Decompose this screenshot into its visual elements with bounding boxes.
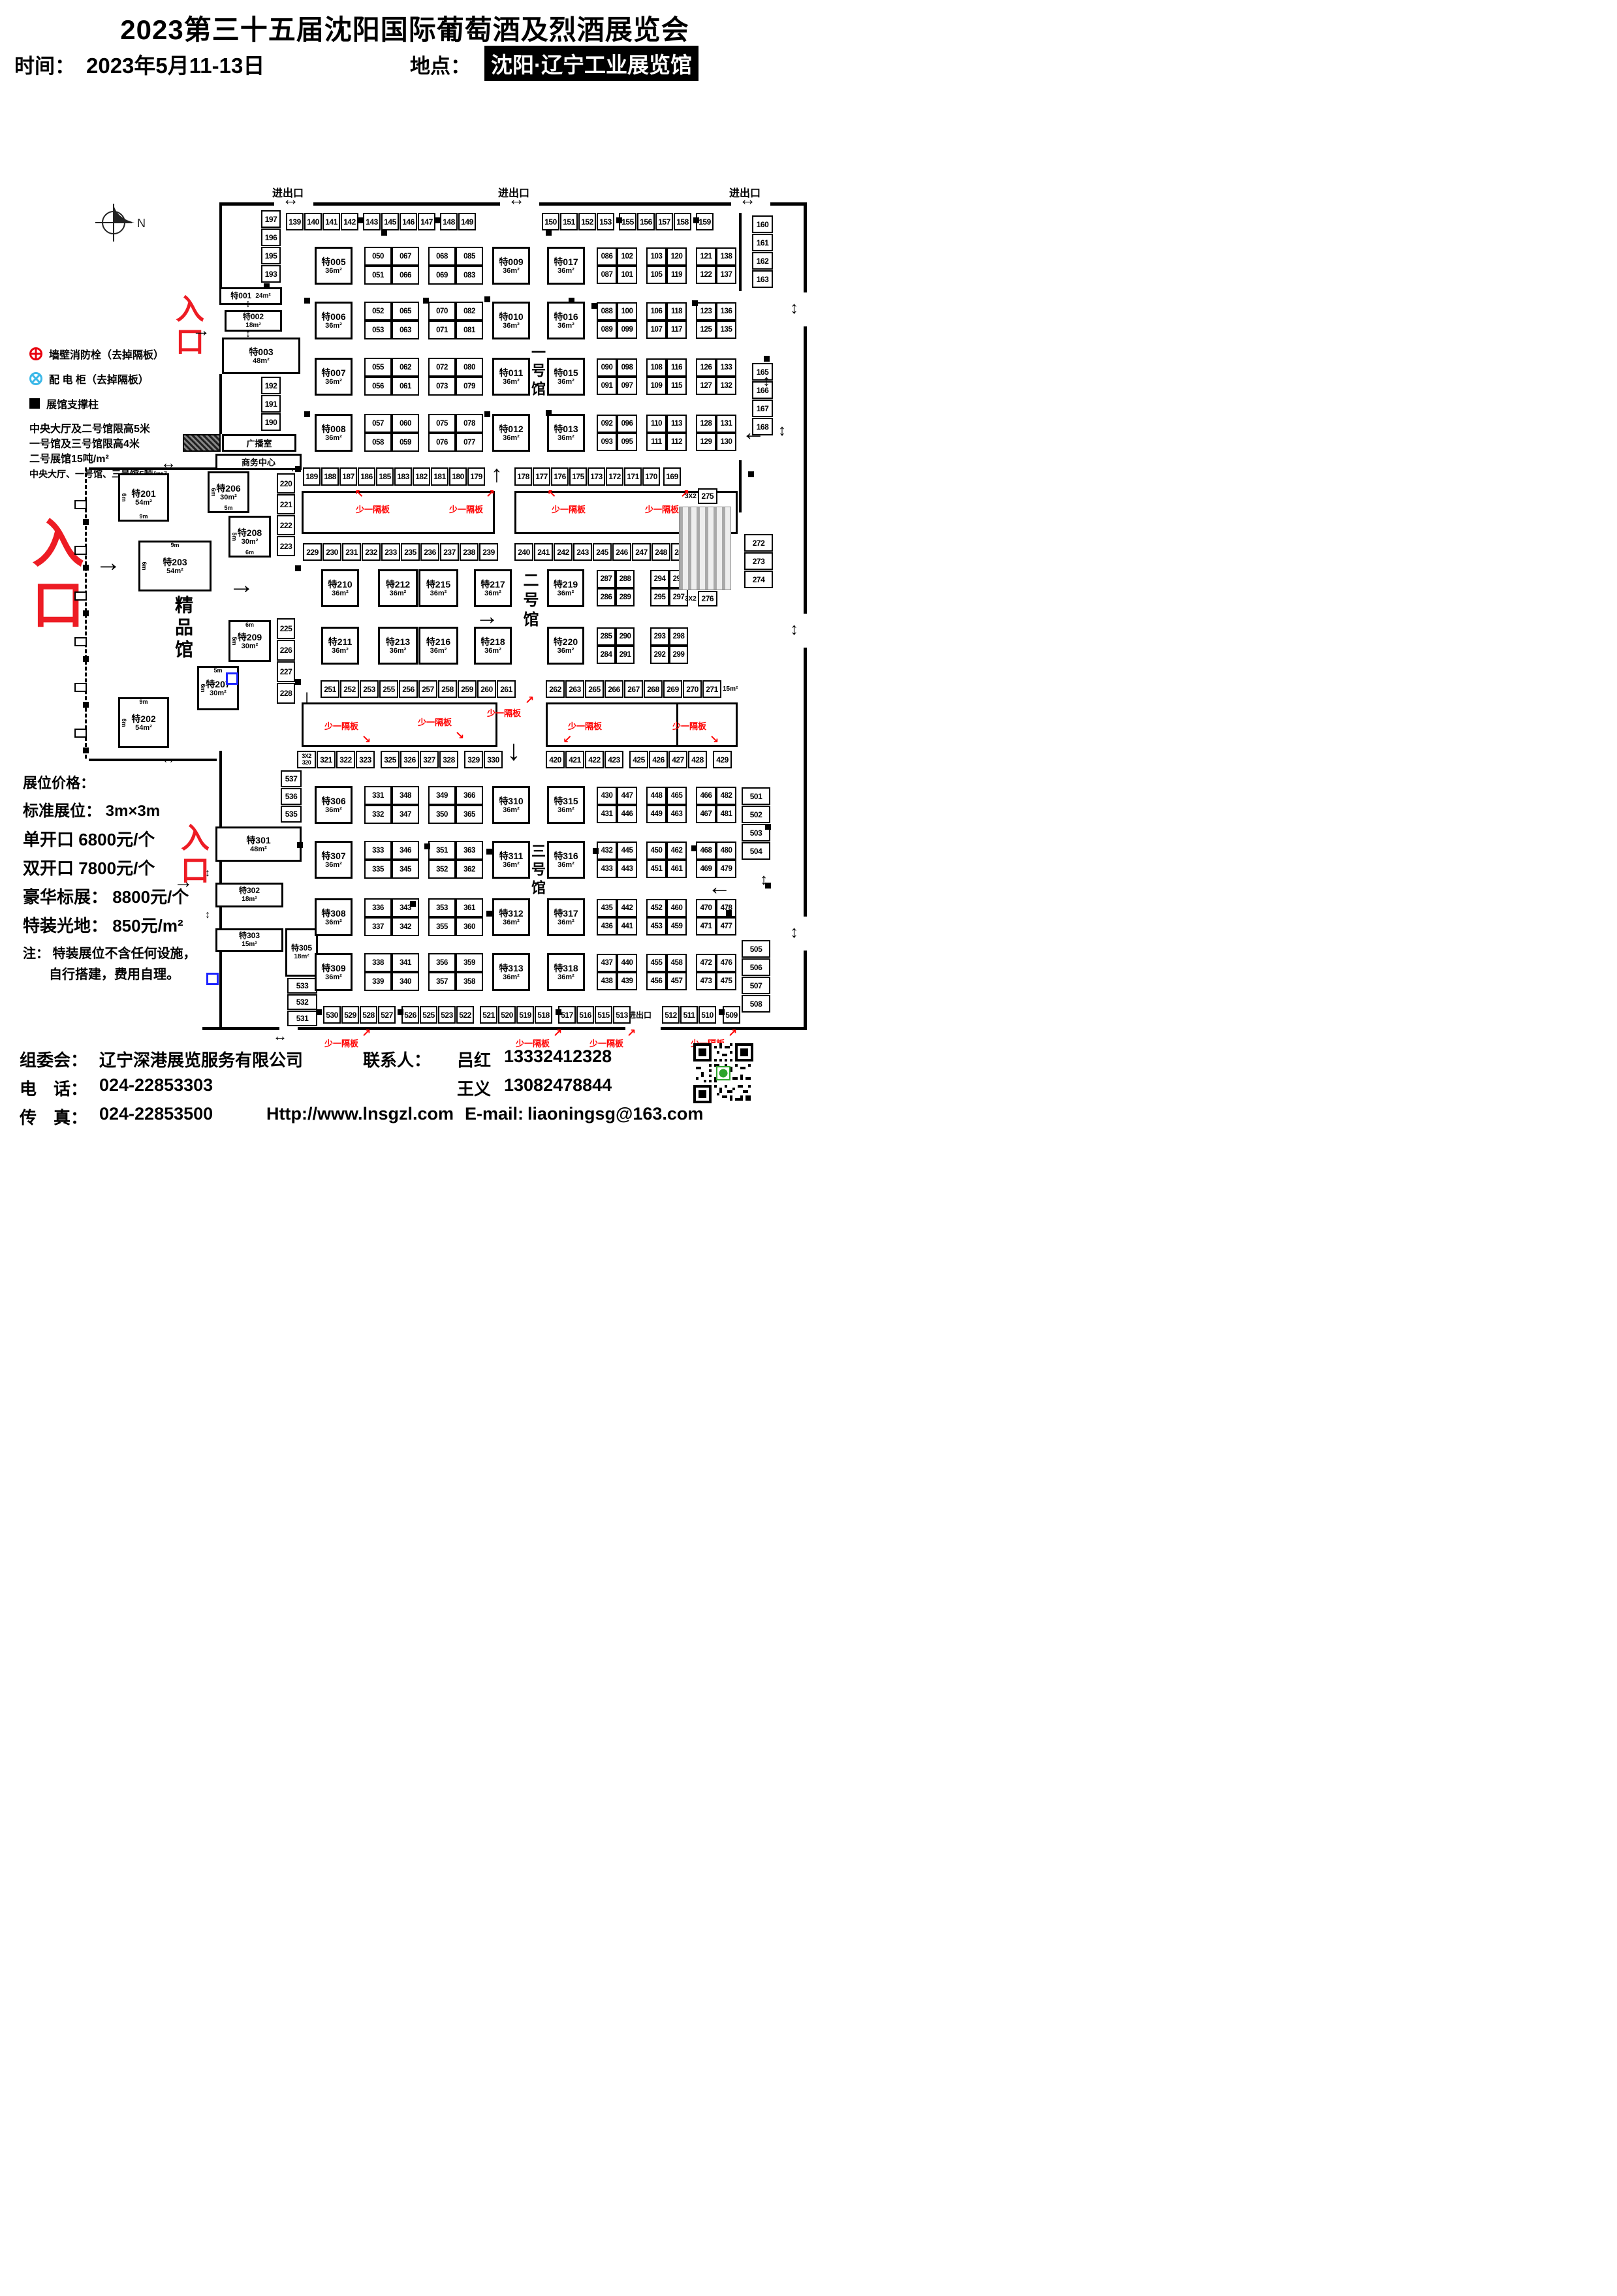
booth-cell[interactable]: 472 xyxy=(696,954,716,972)
booth-cell[interactable]: 130 xyxy=(716,433,736,451)
booth-cell[interactable]: 512 xyxy=(662,1006,680,1024)
booth-cell[interactable]: 083 xyxy=(456,266,483,285)
booth-cell[interactable]: 112 xyxy=(667,433,687,451)
booth-cell[interactable]: 192 xyxy=(261,377,281,394)
booth-cell[interactable]: 299 xyxy=(669,646,688,664)
booth-cell[interactable]: 095 xyxy=(617,433,637,451)
booth-cell[interactable]: 127 xyxy=(696,377,716,395)
booth-cell[interactable]: 121 xyxy=(696,247,716,266)
booth-cell[interactable]: 107 xyxy=(646,321,667,339)
booth-cell[interactable]: 458 xyxy=(667,954,687,972)
booth-cell[interactable]: 506 xyxy=(742,958,770,976)
booth-cell[interactable]: 537 xyxy=(281,770,302,787)
booth-t008[interactable]: 特00836m² xyxy=(315,414,353,452)
booth-t317[interactable]: 特31736m² xyxy=(547,898,585,936)
booth-cell[interactable]: 135 xyxy=(716,321,736,339)
booth-cell[interactable]: 475 xyxy=(716,972,736,990)
booth-cell[interactable]: 251 xyxy=(321,680,339,698)
booth-cell[interactable]: 191 xyxy=(261,395,281,413)
booth-cell[interactable]: 188 xyxy=(321,467,339,486)
booth-t303[interactable]: 特30315m² xyxy=(215,928,283,952)
booth-cell[interactable]: 067 xyxy=(392,247,419,266)
booth-cell[interactable]: 081 xyxy=(456,321,483,339)
booth-cell[interactable]: 522 xyxy=(456,1006,474,1024)
booth-cell[interactable]: 258 xyxy=(438,680,457,698)
booth-cell[interactable]: 441 xyxy=(617,917,637,936)
booth-cell[interactable]: 450 xyxy=(646,841,667,860)
booth-cell[interactable]: 289 xyxy=(616,588,635,606)
booth-t219[interactable]: 特21936m² xyxy=(547,569,584,607)
booth-cell[interactable]: 113 xyxy=(667,415,687,433)
booth-cell[interactable]: 053 xyxy=(364,321,392,339)
booth-cell[interactable]: 243 xyxy=(573,543,592,561)
booth-t301[interactable]: 特30148m² xyxy=(215,826,302,862)
booth-cell[interactable]: 131 xyxy=(716,415,736,433)
booth-cell[interactable]: 291 xyxy=(616,646,635,664)
booth-cell[interactable]: 128 xyxy=(696,415,716,433)
booth-cell[interactable]: 101 xyxy=(617,266,637,284)
booth-cell[interactable]: 359 xyxy=(456,953,483,972)
booth-cell[interactable]: 262 xyxy=(546,680,565,698)
booth-t017[interactable]: 特01736m² xyxy=(547,247,585,285)
booth-cell[interactable]: 326 xyxy=(400,751,419,768)
booth-cell[interactable]: 468 xyxy=(696,841,716,860)
booth-cell[interactable]: 448 xyxy=(646,787,667,805)
booth-cell[interactable]: 051 xyxy=(364,266,392,285)
booth-cell[interactable]: 361 xyxy=(456,898,483,917)
booth-cell[interactable]: 271 xyxy=(702,680,721,698)
booth-cell[interactable]: 348 xyxy=(392,786,419,805)
booth-cell[interactable]: 233 xyxy=(381,543,400,561)
booth-cell[interactable]: 111 xyxy=(646,433,667,451)
booth-t318[interactable]: 特31836m² xyxy=(547,953,585,991)
booth-cell[interactable]: 263 xyxy=(565,680,584,698)
booth-cell[interactable]: 350 xyxy=(428,805,456,824)
booth-cell[interactable]: 533 xyxy=(287,978,317,994)
booth-cell[interactable]: 181 xyxy=(431,467,448,486)
booth-cell[interactable]: 059 xyxy=(392,433,419,452)
booth-cell[interactable]: 260 xyxy=(477,680,496,698)
booth-cell[interactable]: 099 xyxy=(617,321,637,339)
booth-t311[interactable]: 特31136m² xyxy=(492,841,530,879)
booth-t308[interactable]: 特30836m² xyxy=(315,898,353,936)
booth-cell[interactable]: 481 xyxy=(716,805,736,823)
booth-cell[interactable]: 270 xyxy=(683,680,702,698)
booth-cell[interactable]: 505 xyxy=(742,940,770,958)
booth-cell[interactable]: 428 xyxy=(688,751,707,768)
booth-cell[interactable]: 187 xyxy=(339,467,357,486)
booth-cell[interactable]: 516 xyxy=(576,1006,594,1024)
booth-cell[interactable]: 171 xyxy=(624,467,642,486)
booth-t213[interactable]: 特21336m² xyxy=(378,627,418,665)
booth-cell[interactable]: 248 xyxy=(652,543,670,561)
booth-cell[interactable]: 118 xyxy=(667,302,687,321)
booth-t012[interactable]: 特01236m² xyxy=(492,414,530,452)
booth-cell[interactable]: 242 xyxy=(554,543,573,561)
booth-t309[interactable]: 特30936m² xyxy=(315,953,353,991)
booth-cell[interactable]: 176 xyxy=(551,467,569,486)
booth-cell[interactable]: 298 xyxy=(669,627,688,646)
booth-cell[interactable]: 110 xyxy=(646,415,667,433)
booth-cell[interactable]: 471 xyxy=(696,917,716,936)
booth-cell[interactable]: 470 xyxy=(696,899,716,917)
booth-cell[interactable]: 521 xyxy=(480,1006,497,1024)
booth-cell[interactable]: 451 xyxy=(646,860,667,878)
booth-t201[interactable]: 特20154m² 6m9m xyxy=(118,473,169,522)
booth-cell[interactable]: 182 xyxy=(413,467,430,486)
booth-cell[interactable]: 266 xyxy=(604,680,623,698)
booth-cell[interactable]: 504 xyxy=(742,842,770,860)
booth-cell[interactable]: 072 xyxy=(428,358,456,377)
booth-cell[interactable]: 290 xyxy=(616,627,635,646)
booth-cell[interactable]: 341 xyxy=(392,953,419,972)
booth-cell[interactable]: 145 xyxy=(381,213,399,230)
booth-cell[interactable]: 351 xyxy=(428,841,456,860)
booth-cell[interactable]: 285 xyxy=(597,627,616,646)
booth-cell[interactable]: 457 xyxy=(667,972,687,990)
booth-cell[interactable]: 227 xyxy=(277,661,295,682)
booth-cell[interactable]: 420 xyxy=(546,751,565,768)
booth-cell[interactable]: 140 xyxy=(304,213,322,230)
booth-cell[interactable]: 106 xyxy=(646,302,667,321)
booth-cell[interactable]: 456 xyxy=(646,972,667,990)
booth-cell[interactable]: 150 xyxy=(542,213,559,230)
booth-cell[interactable]: 294 xyxy=(650,570,669,588)
booth-cell[interactable]: 325 xyxy=(381,751,400,768)
booth-cell[interactable]: 528 xyxy=(360,1006,377,1024)
booth-cell[interactable]: 185 xyxy=(376,467,394,486)
booth-cell[interactable]: 463 xyxy=(667,805,687,823)
booth-cell[interactable]: 098 xyxy=(617,358,637,377)
booth-t211[interactable]: 特21136m² xyxy=(321,627,359,665)
booth-cell[interactable]: 477 xyxy=(716,917,736,936)
booth-t305[interactable]: 特30518m² xyxy=(285,928,318,977)
booth-cell[interactable]: 421 xyxy=(565,751,584,768)
booth-cell[interactable]: 442 xyxy=(617,899,637,917)
booth-cell[interactable]: 226 xyxy=(277,640,295,661)
booth-t003[interactable]: 特00348m² xyxy=(222,338,300,374)
booth-cell[interactable]: 352 xyxy=(428,860,456,879)
booth-cell[interactable]: 333 xyxy=(364,841,392,860)
booth-cell[interactable]: 096 xyxy=(617,415,637,433)
booth-cell[interactable]: 197 xyxy=(261,210,281,228)
booth-cell[interactable]: 065 xyxy=(392,302,419,321)
booth-cell[interactable]: 535 xyxy=(281,806,302,823)
booth-cell[interactable]: 175 xyxy=(569,467,587,486)
booth-cell[interactable]: 460 xyxy=(667,899,687,917)
booth-cell[interactable]: 220 xyxy=(277,473,295,494)
booth-cell[interactable]: 089 xyxy=(597,321,617,339)
booth-t217[interactable]: 特21736m² xyxy=(474,569,512,607)
booth-cell[interactable]: 056 xyxy=(364,377,392,396)
booth-cell[interactable]: 286 xyxy=(597,588,616,606)
booth-cell[interactable]: 139 xyxy=(286,213,304,230)
booth-cell[interactable]: 438 xyxy=(597,972,617,990)
booth-cell[interactable]: 052 xyxy=(364,302,392,321)
booth-cell[interactable]: 342 xyxy=(392,917,419,936)
booth-cell[interactable]: 256 xyxy=(399,680,418,698)
booth-cell[interactable]: 100 xyxy=(617,302,637,321)
booth-cell[interactable]: 255 xyxy=(379,680,398,698)
booth-cell[interactable]: 075 xyxy=(428,414,456,433)
booth-cell[interactable]: 167 xyxy=(752,400,773,417)
booth-cell[interactable]: 069 xyxy=(428,266,456,285)
booth-cell[interactable]: 132 xyxy=(716,377,736,395)
booth-cell[interactable]: 295 xyxy=(650,588,669,606)
booth-cell[interactable]: 502 xyxy=(742,806,770,823)
booth-cell[interactable]: 103 xyxy=(646,247,667,266)
booth-cell[interactable]: 459 xyxy=(667,917,687,936)
booth-cell[interactable]: 120 xyxy=(667,247,687,266)
booth-cell[interactable]: 365 xyxy=(456,805,483,824)
booth-cell[interactable]: 284 xyxy=(597,646,616,664)
booth-cell[interactable]: 519 xyxy=(516,1006,534,1024)
booth-cell[interactable]: 058 xyxy=(364,433,392,452)
booth-cell[interactable]: 125 xyxy=(696,321,716,339)
booth-cell[interactable]: 189 xyxy=(303,467,321,486)
booth-cell[interactable]: 446 xyxy=(617,805,637,823)
booth-cell[interactable]: 453 xyxy=(646,917,667,936)
booth-cell[interactable]: 117 xyxy=(667,321,687,339)
booth-cell[interactable]: 455 xyxy=(646,954,667,972)
booth-cell[interactable]: 116 xyxy=(667,358,687,377)
booth-cell[interactable]: 466 xyxy=(696,787,716,805)
booth-cell[interactable]: 062 xyxy=(392,358,419,377)
booth-cell[interactable]: 161 xyxy=(752,234,773,251)
booth-cell[interactable]: 137 xyxy=(716,266,736,284)
booth-cell[interactable]: 429 xyxy=(713,751,732,768)
booth-cell[interactable]: 509 xyxy=(723,1006,740,1024)
booth-cell[interactable]: 180 xyxy=(449,467,467,486)
booth-cell[interactable]: 435 xyxy=(597,899,617,917)
booth-cell[interactable]: 259 xyxy=(458,680,477,698)
booth-cell[interactable]: 362 xyxy=(456,860,483,879)
booth-cell[interactable]: 338 xyxy=(364,953,392,972)
booth-cell[interactable]: 513 xyxy=(613,1006,631,1024)
booth-t016[interactable]: 特01636m² xyxy=(547,302,585,339)
booth-t310[interactable]: 特31036m² xyxy=(492,786,530,824)
booth-cell[interactable]: 467 xyxy=(696,805,716,823)
booth-cell[interactable]: 158 xyxy=(674,213,691,230)
booth-cell[interactable]: 473 xyxy=(696,972,716,990)
booth-cell[interactable]: 123 xyxy=(696,302,716,321)
booth-cell[interactable]: 292 xyxy=(650,646,669,664)
booth-cell[interactable]: 436 xyxy=(597,917,617,936)
booth-t315[interactable]: 特31536m² xyxy=(547,786,585,824)
booth-cell[interactable]: 253 xyxy=(360,680,379,698)
booth-cell[interactable]: 160 xyxy=(752,215,773,233)
booth-cell[interactable]: 070 xyxy=(428,302,456,321)
booth-cell[interactable]: 332 xyxy=(364,805,392,824)
booth-cell[interactable]: 162 xyxy=(752,252,773,270)
booth-cell[interactable]: 102 xyxy=(617,247,637,266)
booth-cell[interactable]: 269 xyxy=(663,680,682,698)
booth-cell[interactable]: 462 xyxy=(667,841,687,860)
booth-cell[interactable]: 080 xyxy=(456,358,483,377)
booth-cell[interactable]: 105 xyxy=(646,266,667,284)
booth-cell[interactable]: 426 xyxy=(649,751,668,768)
booth-cell[interactable]: 133 xyxy=(716,358,736,377)
booth-cell[interactable]: 141 xyxy=(322,213,340,230)
booth-t312[interactable]: 特31236m² xyxy=(492,898,530,936)
booth-cell[interactable]: 082 xyxy=(456,302,483,321)
booth-cell[interactable]: 336 xyxy=(364,898,392,917)
booth-cell[interactable]: 173 xyxy=(588,467,605,486)
booth-cell[interactable]: 323 xyxy=(356,751,375,768)
booth-cell[interactable]: 068 xyxy=(428,247,456,266)
booth-cell[interactable]: 163 xyxy=(752,270,773,288)
booth-cell[interactable]: 423 xyxy=(604,751,623,768)
booth-t313[interactable]: 特31336m² xyxy=(492,953,530,991)
booth-t216[interactable]: 特21636m² xyxy=(418,627,458,665)
booth-cell[interactable]: 437 xyxy=(597,954,617,972)
booth-cell[interactable]: 236 xyxy=(420,543,439,561)
booth-cell[interactable]: 353 xyxy=(428,898,456,917)
booth-cell[interactable]: 425 xyxy=(629,751,648,768)
booth-cell[interactable]: 327 xyxy=(420,751,439,768)
booth-cell[interactable]: 183 xyxy=(394,467,412,486)
booth-cell[interactable]: 508 xyxy=(742,995,770,1013)
booth-cell[interactable]: 186 xyxy=(358,467,375,486)
booth-t208[interactable]: 特20830m² 5m6m xyxy=(228,516,271,558)
booth-t206[interactable]: 特20630m² 6m5m xyxy=(208,471,249,513)
booth-cell[interactable]: 445 xyxy=(617,841,637,860)
booth-cell[interactable]: 340 xyxy=(392,972,419,991)
booth-cell[interactable]: 076 xyxy=(428,433,456,452)
booth-cell[interactable]: 193 xyxy=(261,265,281,283)
booth-cell[interactable]: 501 xyxy=(742,787,770,805)
booth-cell[interactable]: 151 xyxy=(560,213,578,230)
booth-cell[interactable]: 328 xyxy=(439,751,458,768)
booth-cell[interactable]: 482 xyxy=(716,787,736,805)
booth-cell[interactable]: 427 xyxy=(668,751,687,768)
booth-cell[interactable]: 532 xyxy=(287,994,317,1010)
booth-cell[interactable]: 092 xyxy=(597,415,617,433)
booth-cell[interactable]: 339 xyxy=(364,972,392,991)
booth-cell[interactable]: 345 xyxy=(392,860,419,879)
booth-cell[interactable]: 078 xyxy=(456,414,483,433)
booth-cell[interactable]: 321 xyxy=(317,751,336,768)
booth-t010[interactable]: 特01036m² xyxy=(492,302,530,339)
booth-t215[interactable]: 特21536m² xyxy=(418,569,458,607)
booth-cell[interactable]: 366 xyxy=(456,786,483,805)
booth-cell[interactable]: 525 xyxy=(420,1006,437,1024)
booth-cell[interactable]: 143 xyxy=(363,213,381,230)
booth-cell[interactable]: 261 xyxy=(497,680,516,698)
booth-cell[interactable]: 529 xyxy=(341,1006,359,1024)
booth-cell[interactable]: 329 xyxy=(464,751,483,768)
booth-t203[interactable]: 特20354m² 9m6m xyxy=(138,541,212,591)
booth-cell[interactable]: 071 xyxy=(428,321,456,339)
booth-cell[interactable]: 061 xyxy=(392,377,419,396)
booth-cell[interactable]: 276 xyxy=(698,591,717,606)
booth-cell[interactable]: 531 xyxy=(287,1011,317,1026)
booth-cell[interactable]: 091 xyxy=(597,377,617,395)
booth-cell[interactable]: 153 xyxy=(597,213,614,230)
booth-cell[interactable]: 515 xyxy=(595,1006,612,1024)
booth-cell[interactable]: 057 xyxy=(364,414,392,433)
booth-cell[interactable]: 240 xyxy=(514,543,533,561)
booth-cell[interactable]: 356 xyxy=(428,953,456,972)
booth-t015[interactable]: 特01536m² xyxy=(547,358,585,396)
booth-cell[interactable]: 073 xyxy=(428,377,456,396)
booth-cell[interactable]: 245 xyxy=(593,543,612,561)
booth-cell[interactable]: 228 xyxy=(277,683,295,704)
booth-t011[interactable]: 特01136m² xyxy=(492,358,530,396)
booth-cell[interactable]: 097 xyxy=(617,377,637,395)
booth-cell[interactable]: 461 xyxy=(667,860,687,878)
booth-cell[interactable]: 358 xyxy=(456,972,483,991)
booth-cell[interactable]: 447 xyxy=(617,787,637,805)
booth-cell[interactable]: 433 xyxy=(597,860,617,878)
booth-t007[interactable]: 特00736m² xyxy=(315,358,353,396)
booth-cell[interactable]: 335 xyxy=(364,860,392,879)
booth-t009[interactable]: 特00936m² xyxy=(492,247,530,285)
booth-cell[interactable]: 195 xyxy=(261,247,281,264)
booth-cell[interactable]: 087 xyxy=(597,266,617,284)
booth-cell[interactable]: 237 xyxy=(440,543,459,561)
booth-t013[interactable]: 特01336m² xyxy=(547,414,585,452)
booth-cell[interactable]: 239 xyxy=(479,543,498,561)
booth-cell[interactable]: 196 xyxy=(261,228,281,246)
booth-cell[interactable]: 452 xyxy=(646,899,667,917)
booth-cell[interactable]: 247 xyxy=(632,543,651,561)
booth-cell[interactable]: 511 xyxy=(680,1006,698,1024)
booth-cell[interactable]: 147 xyxy=(418,213,435,230)
booth-cell[interactable]: 090 xyxy=(597,358,617,377)
booth-cell[interactable]: 172 xyxy=(606,467,623,486)
booth-cell[interactable]: 526 xyxy=(401,1006,419,1024)
booth-cell[interactable]: 440 xyxy=(617,954,637,972)
booth-cell[interactable]: 527 xyxy=(378,1006,396,1024)
booth-cell[interactable]: 476 xyxy=(716,954,736,972)
booth-cell[interactable]: 050 xyxy=(364,247,392,266)
booth-cell[interactable]: 330 xyxy=(484,751,503,768)
booth-cell[interactable]: 156 xyxy=(637,213,655,230)
booth-t306[interactable]: 特30636m² xyxy=(315,786,353,824)
booth-cell[interactable]: 349 xyxy=(428,786,456,805)
booth-cell[interactable]: 530 xyxy=(323,1006,341,1024)
booth-t316[interactable]: 特31636m² xyxy=(547,841,585,879)
booth-cell[interactable]: 230 xyxy=(322,543,341,561)
booth-cell[interactable]: 422 xyxy=(585,751,604,768)
booth-cell[interactable]: 190 xyxy=(261,413,281,431)
booth-t001[interactable]: 特00124m² xyxy=(219,287,282,305)
booth-cell[interactable]: 449 xyxy=(646,805,667,823)
booth-t307[interactable]: 特30736m² xyxy=(315,841,353,879)
booth-t302[interactable]: 特30218m² xyxy=(215,883,283,907)
booth-cell[interactable]: 480 xyxy=(716,841,736,860)
booth-t006[interactable]: 特00636m² xyxy=(315,302,353,339)
booth-cell[interactable]: 138 xyxy=(716,247,736,266)
booth-cell[interactable]: 267 xyxy=(624,680,643,698)
booth-cell[interactable]: 225 xyxy=(277,618,295,639)
booth-cell[interactable]: 085 xyxy=(456,247,483,266)
booth-cell[interactable]: 273 xyxy=(744,552,773,570)
booth-t210[interactable]: 特21036m² xyxy=(321,569,359,607)
booth-t212[interactable]: 特21236m² xyxy=(378,569,418,607)
booth-cell[interactable]: 518 xyxy=(535,1006,552,1024)
booth-t218[interactable]: 特21836m² xyxy=(474,627,512,665)
booth-cell[interactable]: 346 xyxy=(392,841,419,860)
booth-cell[interactable]: 288 xyxy=(616,570,635,588)
booth-cell[interactable]: 241 xyxy=(534,543,553,561)
booth-cell[interactable]: 122 xyxy=(696,266,716,284)
booth-cell[interactable]: 275 xyxy=(698,488,717,504)
booth-cell[interactable]: 431 xyxy=(597,805,617,823)
booth-cell[interactable]: 268 xyxy=(644,680,663,698)
booth-cell[interactable]: 322 xyxy=(336,751,355,768)
